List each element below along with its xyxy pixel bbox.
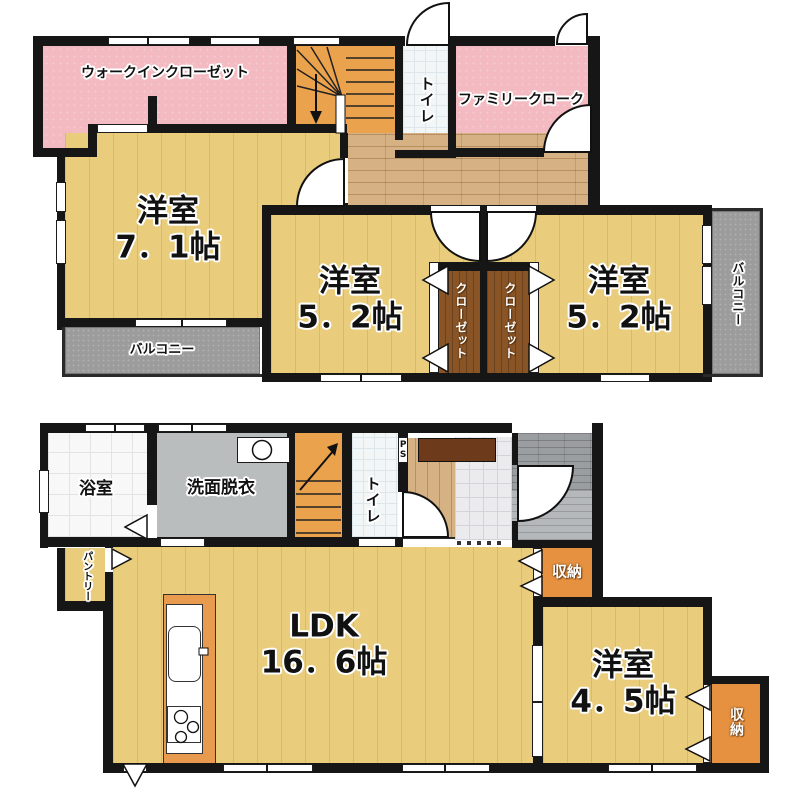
window-mullion <box>147 37 149 45</box>
wall <box>40 537 403 547</box>
balcony-wall <box>760 208 763 377</box>
balcony-wall <box>703 374 763 377</box>
door-opening <box>405 36 448 46</box>
door-opening <box>105 548 113 572</box>
sliding-door <box>532 702 543 757</box>
wall <box>456 148 544 157</box>
label-room71: 洋室 7．1帖 <box>115 194 220 265</box>
window <box>702 266 712 305</box>
label-bath: 浴室 <box>79 480 113 500</box>
label-pantry: パントリー <box>80 551 92 601</box>
balcony-wall <box>62 327 65 377</box>
room-name: LDK <box>261 609 388 645</box>
window <box>402 764 490 772</box>
closet-door-panel <box>533 548 542 597</box>
wall <box>588 36 600 215</box>
sliding-door <box>532 645 543 702</box>
wall <box>512 433 518 465</box>
wall <box>103 601 113 773</box>
kitchen-sink <box>168 626 201 682</box>
wall <box>448 36 456 158</box>
balcony-wall <box>62 374 262 377</box>
window <box>210 37 260 45</box>
hallway-2f <box>347 133 593 207</box>
window <box>56 220 66 264</box>
window-mullion <box>651 764 653 772</box>
sliding-door <box>160 538 205 547</box>
room-name: 洋室 <box>566 264 671 300</box>
door-opening <box>431 206 480 215</box>
room-size: 7．1帖 <box>115 230 220 266</box>
window <box>293 37 340 45</box>
window-mullion <box>360 374 362 382</box>
wall <box>342 433 352 537</box>
label-toilet-1f: トイレ <box>363 476 380 524</box>
room-name: 洋室 <box>115 194 220 230</box>
wall <box>262 207 271 382</box>
wall <box>395 36 403 140</box>
wall <box>480 215 487 373</box>
door-opening <box>147 505 157 538</box>
door-opening <box>555 36 588 46</box>
label-ps: PS <box>398 440 408 460</box>
door-opening <box>340 158 348 203</box>
wall <box>395 150 456 158</box>
shoe-cabinet <box>418 438 496 462</box>
label-family-cloak: ファミリークローク <box>458 92 584 108</box>
wall <box>512 540 603 548</box>
wall <box>340 133 348 158</box>
room-walk-in-closet <box>43 46 288 124</box>
label-room52-right: 洋室 5．2帖 <box>566 264 671 335</box>
window <box>223 764 313 772</box>
stairs-2f <box>296 46 395 133</box>
door-opening <box>398 492 408 537</box>
label-storage-entry: 収納 <box>552 563 582 580</box>
label-walk-in-closet: ウォークインクローゼット <box>81 65 249 81</box>
room-size: 16．6帖 <box>261 645 388 681</box>
floorplan: ウォークインクローゼット トイレ ファミリークローク 洋室 7．1帖 バルコニー… <box>0 0 800 800</box>
window <box>56 182 66 212</box>
room-size: 5．2帖 <box>566 300 671 336</box>
wall <box>105 537 113 548</box>
label-room45: 洋室 4．5帖 <box>570 648 675 719</box>
window-mullion <box>114 424 116 432</box>
window-mullion <box>444 764 446 772</box>
window-mullion <box>181 319 183 327</box>
label-ldk: LDK 16．6帖 <box>261 609 388 680</box>
kitchen-stove <box>167 706 201 743</box>
room-name: 洋室 <box>297 264 402 300</box>
wall <box>33 36 43 157</box>
wall <box>592 423 603 607</box>
door-opening <box>358 538 396 547</box>
door-opening <box>487 206 536 215</box>
wall <box>147 433 157 505</box>
room-size: 4．5帖 <box>570 684 675 720</box>
room-size: 5．2帖 <box>297 300 402 336</box>
threshold-line <box>403 537 455 539</box>
balcony-wall <box>712 208 763 211</box>
wall <box>533 597 712 607</box>
window <box>702 225 712 264</box>
label-washroom: 洗面脱衣 <box>187 479 255 499</box>
label-closet-right: クローゼット <box>502 282 516 360</box>
window <box>39 470 49 513</box>
wall <box>287 36 296 133</box>
closet-door-panel <box>429 262 439 373</box>
label-toilet-2f: トイレ <box>417 76 434 124</box>
window <box>123 764 147 772</box>
stairs-1f <box>295 433 342 537</box>
window-mullion <box>191 424 193 432</box>
window <box>108 37 190 45</box>
wall <box>148 124 290 133</box>
entry-step-dashes <box>457 541 504 545</box>
room-name: 洋室 <box>570 648 675 684</box>
sliding-door <box>97 124 148 133</box>
label-balcony-left: バルコニー <box>130 344 195 359</box>
porch-upper <box>512 433 592 490</box>
closet-door-panel <box>529 262 539 373</box>
porch-lower <box>512 490 592 540</box>
label-storage-room: 収納 <box>728 707 744 737</box>
label-balcony-right: バルコニー <box>730 262 744 327</box>
wall <box>287 124 347 133</box>
window-mullion <box>266 764 268 772</box>
washer-pan <box>237 437 290 463</box>
wall <box>760 676 769 773</box>
wall <box>88 124 97 157</box>
wall <box>512 521 518 540</box>
wall <box>105 572 113 601</box>
window <box>600 374 650 382</box>
label-room52-left: 洋室 5．2帖 <box>297 264 402 335</box>
label-closet-left: クローゼット <box>453 282 467 360</box>
closet-door-panel <box>703 684 712 763</box>
wall <box>703 598 712 684</box>
